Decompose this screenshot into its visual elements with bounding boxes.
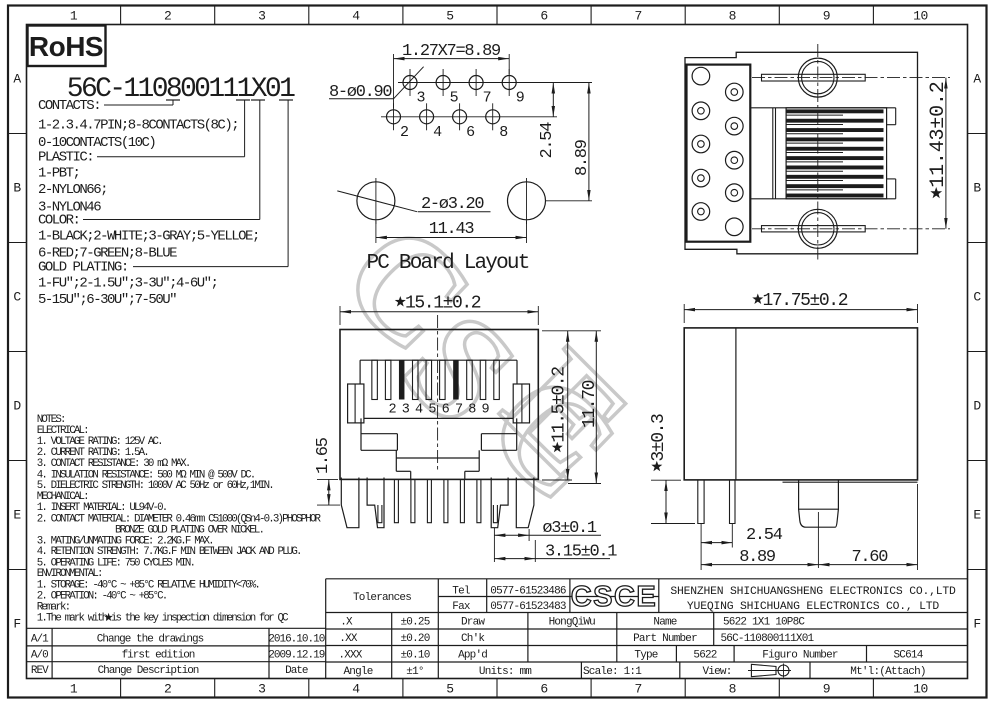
svg-text:F: F bbox=[13, 617, 20, 632]
svg-text:Change the drawings: Change the drawings bbox=[97, 634, 204, 646]
svg-text:A: A bbox=[13, 72, 21, 87]
svg-text:5-15U″;6-30U″;7-50U″: 5-15U″;6-30U″;7-50U″ bbox=[38, 292, 176, 308]
svg-text:Fax: Fax bbox=[452, 601, 471, 613]
svg-text:first edition: first edition bbox=[122, 649, 195, 661]
svg-text:COLOR:: COLOR: bbox=[38, 213, 79, 229]
svg-text:5622 1X1 10P8C: 5622 1X1 10P8C bbox=[723, 617, 805, 629]
svg-text:PC Board Layout: PC Board Layout bbox=[366, 252, 528, 275]
svg-text:4: 4 bbox=[352, 682, 360, 697]
svg-text:8: 8 bbox=[729, 682, 736, 697]
svg-text:Ch'k: Ch'k bbox=[461, 633, 485, 645]
svg-text:7: 7 bbox=[455, 403, 463, 418]
svg-text:ELECTRICAL:: ELECTRICAL: bbox=[37, 425, 88, 437]
svg-text:C: C bbox=[973, 290, 981, 305]
svg-text:4. RETENTION STRENGTH: 7.7KG.F: 4. RETENTION STRENGTH: 7.7KG.F MIN BETWE… bbox=[37, 546, 301, 558]
svg-text:.XX: .XX bbox=[339, 633, 358, 645]
svg-text:9: 9 bbox=[823, 9, 830, 24]
svg-text:4: 4 bbox=[352, 9, 360, 24]
svg-text:D: D bbox=[973, 399, 981, 414]
svg-text:11.5±0.2: 11.5±0.2 bbox=[550, 367, 570, 443]
svg-text:E: E bbox=[13, 508, 21, 523]
svg-text:Units: mm: Units: mm bbox=[479, 666, 532, 678]
svg-text:1.The mark with: 1.The mark with bbox=[37, 613, 108, 625]
svg-text:3±0.3: 3±0.3 bbox=[649, 414, 669, 462]
svg-text:2-NYLON66;: 2-NYLON66; bbox=[38, 182, 107, 198]
svg-text:B: B bbox=[973, 181, 981, 196]
svg-text:B: B bbox=[13, 181, 21, 196]
svg-text:9: 9 bbox=[482, 403, 490, 418]
svg-text:1. INSERT MATERIAL: UL94V-0.: 1. INSERT MATERIAL: UL94V-0. bbox=[37, 502, 167, 514]
svg-text:MECHANICAL:: MECHANICAL: bbox=[37, 491, 88, 503]
svg-text:2: 2 bbox=[400, 124, 408, 141]
svg-text:5: 5 bbox=[446, 9, 453, 24]
svg-text:7: 7 bbox=[634, 9, 641, 24]
svg-text:Remark:: Remark: bbox=[37, 602, 69, 614]
svg-text:1: 1 bbox=[70, 682, 78, 697]
svg-text:SHENZHEN SHICHUANGSHENG ELECTR: SHENZHEN SHICHUANGSHENG ELECTRONICS CO.,… bbox=[670, 586, 956, 598]
svg-text:A: A bbox=[973, 72, 981, 87]
svg-text:Tel: Tel bbox=[452, 586, 470, 598]
svg-text:D: D bbox=[13, 399, 21, 414]
svg-text:±0.25: ±0.25 bbox=[400, 617, 429, 629]
svg-text:0-10CONTACTS(10C): 0-10CONTACTS(10C) bbox=[38, 135, 155, 151]
svg-text:6: 6 bbox=[540, 9, 547, 24]
svg-text:is the key inspection dimensio: is the key inspection dimension for QC bbox=[111, 613, 289, 625]
svg-text:2: 2 bbox=[164, 9, 171, 24]
svg-text:F: F bbox=[973, 617, 980, 632]
svg-text:1. STORAGE: -40°C ~ +85°C RELA: 1. STORAGE: -40°C ~ +85°C RELATIVE HUMID… bbox=[37, 580, 259, 592]
svg-text:PLASTIC:: PLASTIC: bbox=[38, 150, 93, 166]
svg-text:Mt'l:(Attach): Mt'l:(Attach) bbox=[850, 666, 925, 678]
svg-text:3: 3 bbox=[402, 403, 410, 418]
svg-text:1-2.3.4.7PIN;8-8CONTACTS(8C);: 1-2.3.4.7PIN;8-8CONTACTS(8C); bbox=[38, 118, 238, 134]
svg-text:.X: .X bbox=[340, 617, 353, 629]
svg-text:Type: Type bbox=[634, 650, 657, 662]
svg-text:5622: 5622 bbox=[693, 650, 716, 662]
svg-text:1-PBT;: 1-PBT; bbox=[38, 166, 79, 182]
svg-text:2. CURRENT RATING: 1.5A.: 2. CURRENT RATING: 1.5A. bbox=[37, 447, 148, 459]
svg-text:2. CONTACT MATERIAL: DIAMETER: 2. CONTACT MATERIAL: DIAMETER 0.46mm C51… bbox=[37, 514, 322, 526]
svg-text:CSCE: CSCE bbox=[571, 581, 658, 613]
svg-text:ø3±0.1: ø3±0.1 bbox=[542, 519, 597, 538]
svg-text:2-ø3.20: 2-ø3.20 bbox=[421, 195, 484, 214]
svg-text:5: 5 bbox=[428, 403, 436, 418]
svg-text:8: 8 bbox=[499, 124, 508, 141]
svg-text:6: 6 bbox=[442, 403, 450, 418]
svg-text:App'd: App'd bbox=[458, 650, 487, 662]
svg-text:2: 2 bbox=[164, 682, 171, 697]
svg-text:3: 3 bbox=[258, 682, 265, 697]
svg-text:YUEQING SHICHUANG ELECTRONICS: YUEQING SHICHUANG ELECTRONICS CO., LTD bbox=[687, 601, 940, 613]
svg-text:GOLD PLATING:: GOLD PLATING: bbox=[38, 260, 128, 276]
svg-text:7: 7 bbox=[634, 682, 641, 697]
svg-text:4: 4 bbox=[433, 124, 442, 141]
svg-text:±0.10: ±0.10 bbox=[400, 650, 429, 662]
svg-text:RoHS: RoHS bbox=[29, 31, 103, 62]
svg-text:10: 10 bbox=[913, 682, 928, 697]
svg-text:8: 8 bbox=[468, 403, 476, 418]
svg-text:±0.20: ±0.20 bbox=[400, 633, 429, 645]
svg-text:ENVIRONMENTAL:: ENVIRONMENTAL: bbox=[37, 568, 102, 580]
svg-text:2.54: 2.54 bbox=[746, 526, 783, 545]
svg-text:3: 3 bbox=[417, 90, 426, 107]
svg-text:A/1: A/1 bbox=[31, 634, 49, 646]
svg-text:1-FU″;2-1.5U″;3-3U″;4-6U″;: 1-FU″;2-1.5U″;3-3U″;4-6U″; bbox=[38, 275, 217, 291]
svg-text:3. CONTACT RESISTANCE: 30 mΩ M: 3. CONTACT RESISTANCE: 30 mΩ MAX. bbox=[37, 458, 190, 470]
svg-text:E: E bbox=[973, 508, 981, 523]
svg-text:0577-61523483: 0577-61523483 bbox=[490, 601, 566, 613]
svg-text:.XXX: .XXX bbox=[338, 650, 362, 662]
svg-text:2.54: 2.54 bbox=[538, 122, 557, 159]
svg-text:Date: Date bbox=[285, 665, 308, 677]
svg-text:Angle: Angle bbox=[343, 666, 372, 678]
svg-text:1.65: 1.65 bbox=[314, 437, 333, 474]
svg-text:Tolerances: Tolerances bbox=[353, 592, 411, 604]
svg-text:11.43±0.2: 11.43±0.2 bbox=[927, 81, 950, 187]
svg-text:NOTES:: NOTES: bbox=[37, 414, 65, 426]
svg-text:3.15±0.1: 3.15±0.1 bbox=[545, 543, 617, 562]
svg-text:10: 10 bbox=[913, 9, 928, 24]
svg-text:8.89: 8.89 bbox=[739, 548, 776, 567]
svg-text:Draw: Draw bbox=[461, 617, 485, 629]
svg-text:17.75±0.2: 17.75±0.2 bbox=[763, 291, 848, 311]
svg-text:Figuro Number: Figuro Number bbox=[762, 650, 838, 662]
svg-text:2009.12.19: 2009.12.19 bbox=[268, 649, 324, 661]
svg-text:2016.10.10: 2016.10.10 bbox=[268, 634, 324, 646]
svg-text:11.43: 11.43 bbox=[429, 220, 475, 239]
svg-text:C: C bbox=[13, 290, 21, 305]
svg-text:View:: View: bbox=[702, 666, 731, 678]
svg-text:HongQiWu: HongQiWu bbox=[549, 617, 596, 629]
svg-text:8.89: 8.89 bbox=[573, 139, 592, 176]
svg-text:SC614: SC614 bbox=[893, 650, 923, 662]
svg-text:Change Description: Change Description bbox=[98, 665, 199, 677]
svg-text:11.70: 11.70 bbox=[580, 380, 600, 428]
svg-text:3: 3 bbox=[258, 9, 265, 24]
svg-text:15.1±0.2: 15.1±0.2 bbox=[405, 294, 481, 314]
svg-text:CONTACTS:: CONTACTS: bbox=[38, 98, 100, 114]
svg-text:9: 9 bbox=[823, 682, 830, 697]
svg-text:5: 5 bbox=[446, 682, 453, 697]
svg-text:0577-61523486: 0577-61523486 bbox=[490, 586, 566, 598]
svg-text:Part Number: Part Number bbox=[633, 633, 697, 645]
svg-text:9: 9 bbox=[516, 90, 524, 107]
svg-text:REV: REV bbox=[31, 665, 49, 677]
svg-text:A/0: A/0 bbox=[31, 649, 48, 661]
svg-text:6: 6 bbox=[540, 682, 547, 697]
svg-text:Scale: 1:1: Scale: 1:1 bbox=[583, 666, 642, 678]
svg-text:±1°: ±1° bbox=[406, 666, 423, 678]
svg-text:8: 8 bbox=[729, 9, 736, 24]
svg-text:7.60: 7.60 bbox=[851, 548, 888, 567]
svg-text:5: 5 bbox=[450, 90, 459, 107]
svg-text:1-BLACK;2-WHITE;3-GRAY;5-YELLO: 1-BLACK;2-WHITE;3-GRAY;5-YELLOE; bbox=[38, 229, 259, 245]
svg-text:7: 7 bbox=[483, 90, 491, 107]
svg-text:56C-110800111X01: 56C-110800111X01 bbox=[721, 633, 815, 645]
svg-text:1: 1 bbox=[70, 9, 78, 24]
svg-text:6: 6 bbox=[466, 124, 475, 141]
svg-text:4: 4 bbox=[415, 403, 423, 418]
svg-text:2: 2 bbox=[388, 403, 396, 418]
svg-text:Name: Name bbox=[653, 617, 676, 629]
